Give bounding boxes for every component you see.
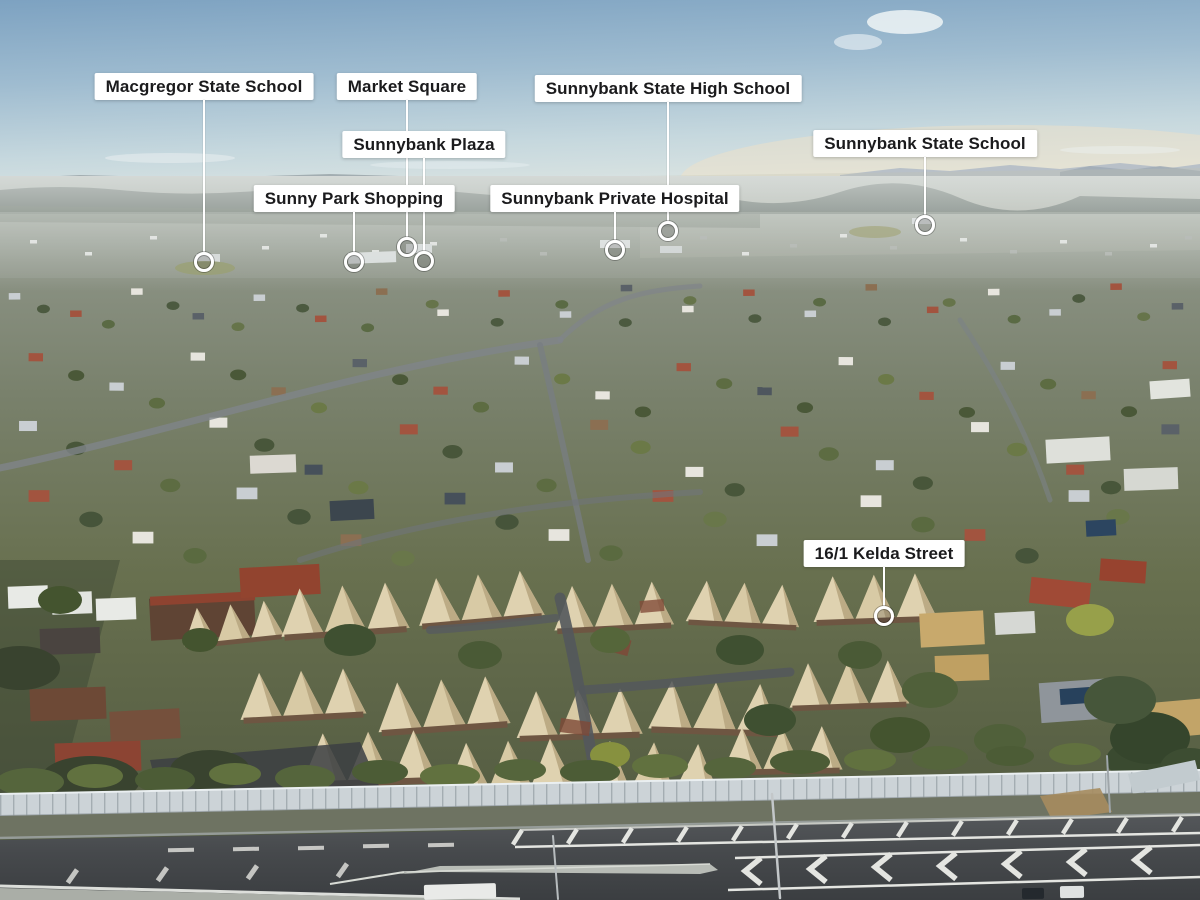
aerial-photo: Macgregor State School Market Square Sun… <box>0 0 1200 900</box>
white-truck <box>424 883 496 900</box>
cloud <box>867 10 943 34</box>
aerial-photo-scene <box>0 0 1200 900</box>
dark-car <box>1022 888 1044 899</box>
white-van <box>1060 886 1084 898</box>
